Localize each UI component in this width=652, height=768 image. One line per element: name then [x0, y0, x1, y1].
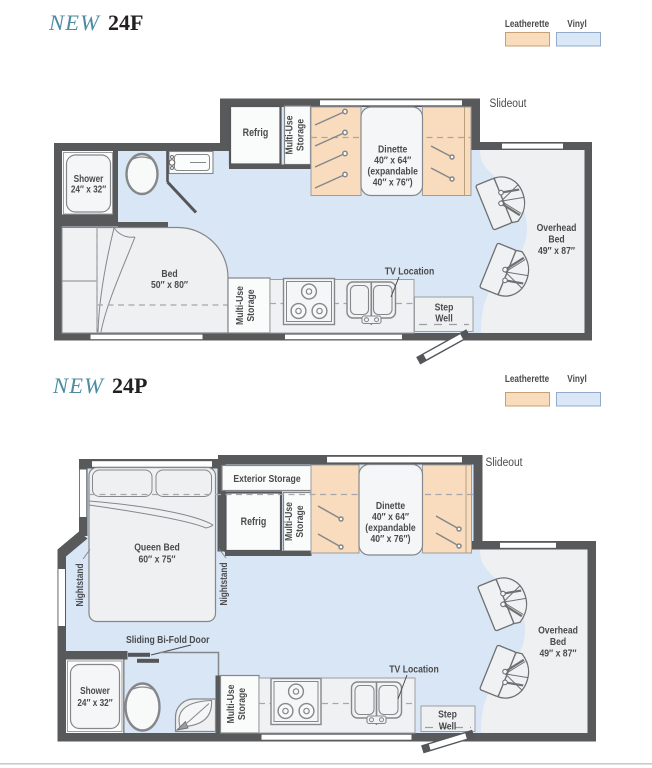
- svg-text:Bed: Bed: [550, 636, 567, 648]
- svg-text:Vinyl: Vinyl: [567, 373, 587, 384]
- svg-text:TV Location: TV Location: [389, 664, 439, 676]
- svg-text:NEW: NEW: [48, 10, 101, 35]
- svg-text:Storage: Storage: [245, 289, 257, 321]
- svg-text:Queen Bed: Queen Bed: [134, 542, 180, 554]
- svg-text:50″ x 80″: 50″ x 80″: [151, 280, 189, 292]
- svg-text:Storage: Storage: [295, 119, 307, 151]
- svg-text:24″ x 32″: 24″ x 32″: [71, 184, 107, 195]
- svg-text:Nightstand: Nightstand: [74, 564, 85, 607]
- svg-text:Sliding Bi-Fold Door: Sliding Bi-Fold Door: [126, 634, 210, 646]
- svg-text:Well: Well: [439, 721, 457, 733]
- svg-text:Shower: Shower: [80, 685, 110, 696]
- svg-text:49″ x 87″: 49″ x 87″: [538, 245, 576, 257]
- svg-text:Bed: Bed: [548, 234, 565, 246]
- svg-text:Bed: Bed: [161, 268, 178, 280]
- svg-text:NEW: NEW: [52, 373, 105, 398]
- svg-text:40″ x 76″): 40″ x 76″): [373, 177, 413, 189]
- svg-text:Step: Step: [438, 709, 457, 721]
- svg-text:Overhead: Overhead: [538, 625, 578, 637]
- svg-text:Storage: Storage: [294, 505, 306, 537]
- svg-text:24″ x 32″: 24″ x 32″: [77, 697, 113, 708]
- svg-text:Leatherette: Leatherette: [505, 18, 549, 29]
- svg-text:Refrig: Refrig: [243, 127, 269, 139]
- svg-text:Storage: Storage: [236, 688, 248, 720]
- svg-text:Well: Well: [435, 313, 453, 325]
- svg-text:Exterior Storage: Exterior Storage: [233, 473, 300, 485]
- svg-text:Shower: Shower: [74, 173, 104, 184]
- svg-text:49″ x 87″: 49″ x 87″: [539, 648, 577, 660]
- svg-text:Slideout: Slideout: [486, 456, 524, 469]
- svg-text:24P: 24P: [112, 373, 147, 398]
- svg-text:Overhead: Overhead: [537, 222, 577, 234]
- svg-text:24F: 24F: [108, 10, 143, 35]
- svg-text:TV Location: TV Location: [385, 266, 435, 278]
- svg-text:Slideout: Slideout: [490, 97, 528, 110]
- svg-text:Vinyl: Vinyl: [567, 18, 587, 29]
- svg-text:Leatherette: Leatherette: [505, 373, 549, 384]
- svg-text:40″ x 76″): 40″ x 76″): [371, 533, 411, 545]
- svg-text:60″ x 75″: 60″ x 75″: [138, 554, 176, 566]
- svg-text:Nightstand: Nightstand: [218, 563, 229, 606]
- svg-text:Refrig: Refrig: [241, 516, 267, 528]
